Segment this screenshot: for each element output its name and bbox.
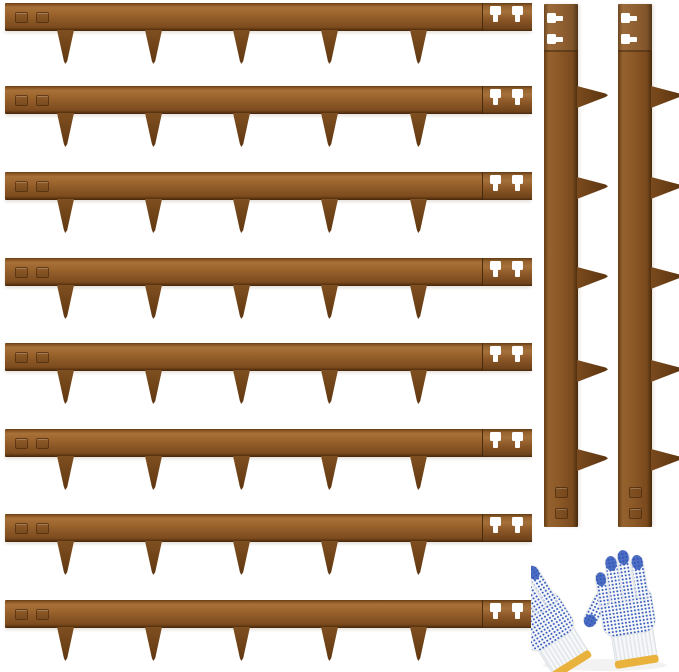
strip-spike — [321, 285, 338, 319]
edging-strip-vertical-1 — [544, 4, 578, 527]
strip-spike — [321, 113, 338, 147]
strip-bar — [5, 429, 531, 457]
keyhole-stem — [515, 269, 520, 277]
keyhole-stem — [629, 16, 637, 21]
strip-spike — [233, 199, 250, 233]
connector-keyhole-slot — [490, 603, 501, 619]
connector-keyhole-slot — [512, 603, 523, 619]
strip-spike — [145, 627, 162, 661]
connector-keyhole-slot — [490, 6, 501, 22]
strip-spike — [321, 199, 338, 233]
stamped-tab — [36, 438, 49, 449]
strip-spike — [145, 199, 162, 233]
strip-spike — [651, 360, 679, 382]
stamped-tab — [36, 523, 49, 534]
strip-bar — [5, 514, 531, 542]
strip-spike — [145, 30, 162, 64]
edging-strip-horizontal-1 — [5, 3, 531, 65]
strip-bar — [5, 600, 531, 628]
connector-keyhole-slot — [490, 517, 501, 533]
edging-strip-horizontal-7 — [5, 514, 531, 576]
strip-spike — [651, 449, 679, 471]
edging-strip-horizontal-3 — [5, 172, 531, 234]
strip-spike — [233, 113, 250, 147]
strip-bar — [5, 3, 531, 31]
connector-keyhole-slot — [512, 175, 523, 191]
connector-keyhole-slot — [512, 261, 523, 277]
connector-keyhole-slot — [512, 517, 523, 533]
strip-spike — [577, 449, 608, 471]
strip-spike — [321, 627, 338, 661]
strip-spike — [145, 370, 162, 404]
stamped-tab — [15, 609, 28, 620]
stamped-tab — [15, 438, 28, 449]
keyhole-stem — [515, 440, 520, 448]
strip-bar — [5, 172, 531, 200]
keyhole-stem — [493, 525, 498, 533]
keyhole-stem — [493, 14, 498, 22]
strip-bar — [5, 86, 531, 114]
strip-spike — [57, 113, 74, 147]
strip-spike — [651, 177, 679, 199]
strip-spike — [145, 113, 162, 147]
strip-spike — [233, 456, 250, 490]
connector-keyhole-slot — [490, 89, 501, 105]
strip-spike — [410, 541, 427, 575]
keyhole-stem — [515, 14, 520, 22]
connector-keyhole-slot — [490, 432, 501, 448]
strip-spike — [57, 30, 74, 64]
keyhole-stem — [493, 183, 498, 191]
connector-keyhole-slot — [490, 346, 501, 362]
connector-keyhole-slot — [621, 13, 637, 23]
strip-spike — [57, 199, 74, 233]
keyhole-stem — [515, 525, 520, 533]
keyhole-stem — [493, 354, 498, 362]
strip-bar — [5, 343, 531, 371]
strip-spike — [233, 370, 250, 404]
edging-strip-horizontal-8 — [5, 600, 531, 662]
strip-spike — [410, 370, 427, 404]
strip-spike — [57, 285, 74, 319]
connector-keyhole-slot — [621, 34, 637, 44]
keyhole-stem — [515, 183, 520, 191]
strip-spike — [145, 456, 162, 490]
strip-spike — [57, 541, 74, 575]
stamped-tab — [36, 12, 49, 23]
edging-strip-horizontal-2 — [5, 86, 531, 148]
strip-spike — [321, 456, 338, 490]
strip-spike — [577, 360, 608, 382]
keyhole-stem — [515, 354, 520, 362]
keyhole-stem — [493, 440, 498, 448]
stamped-tab — [36, 609, 49, 620]
stamped-tab — [36, 267, 49, 278]
keyhole-stem — [515, 97, 520, 105]
strip-bar — [5, 258, 531, 286]
strip-spike — [321, 370, 338, 404]
stamped-tab — [15, 352, 28, 363]
strip-spike — [57, 456, 74, 490]
strip-spike — [233, 541, 250, 575]
strip-spike — [233, 30, 250, 64]
stamped-tab — [15, 267, 28, 278]
strip-spike — [57, 370, 74, 404]
stamped-tab — [555, 487, 568, 498]
strip-spike — [410, 113, 427, 147]
strip-spike — [577, 86, 608, 108]
strip-spike — [410, 199, 427, 233]
stamped-tab — [36, 95, 49, 106]
connector-keyhole-slot — [547, 34, 563, 44]
stamped-tab — [15, 523, 28, 534]
keyhole-stem — [555, 16, 563, 21]
edging-strip-horizontal-4 — [5, 258, 531, 320]
strip-spike — [145, 541, 162, 575]
strip-spike — [233, 627, 250, 661]
strip-connector-plate — [618, 4, 652, 52]
connector-keyhole-slot — [512, 346, 523, 362]
stamped-tab — [555, 508, 568, 519]
strip-connector-plate — [544, 4, 578, 52]
connector-keyhole-slot — [547, 13, 563, 23]
keyhole-stem — [515, 611, 520, 619]
edging-strip-horizontal-6 — [5, 429, 531, 491]
edging-strip-horizontal-5 — [5, 343, 531, 405]
strip-spike — [577, 177, 608, 199]
strip-spike — [651, 86, 679, 108]
keyhole-stem — [493, 97, 498, 105]
connector-keyhole-slot — [512, 89, 523, 105]
strip-spike — [233, 285, 250, 319]
stamped-tab — [36, 181, 49, 192]
edging-strip-vertical-2 — [618, 4, 652, 527]
connector-keyhole-slot — [512, 432, 523, 448]
strip-spike — [410, 30, 427, 64]
work-gloves — [531, 532, 679, 672]
strip-spike — [651, 267, 679, 289]
keyhole-stem — [493, 269, 498, 277]
stamped-tab — [15, 12, 28, 23]
keyhole-stem — [555, 37, 563, 42]
connector-keyhole-slot — [490, 261, 501, 277]
strip-spike — [321, 30, 338, 64]
keyhole-stem — [493, 611, 498, 619]
strip-spike — [577, 267, 608, 289]
strip-spike — [57, 627, 74, 661]
connector-keyhole-slot — [512, 6, 523, 22]
stamped-tab — [629, 508, 642, 519]
stamped-tab — [629, 487, 642, 498]
stamped-tab — [15, 95, 28, 106]
strip-spike — [410, 627, 427, 661]
strip-spike — [410, 285, 427, 319]
stamped-tab — [36, 352, 49, 363]
strip-spike — [145, 285, 162, 319]
strip-spike — [410, 456, 427, 490]
connector-keyhole-slot — [490, 175, 501, 191]
keyhole-stem — [629, 37, 637, 42]
strip-spike — [321, 541, 338, 575]
stamped-tab — [15, 181, 28, 192]
